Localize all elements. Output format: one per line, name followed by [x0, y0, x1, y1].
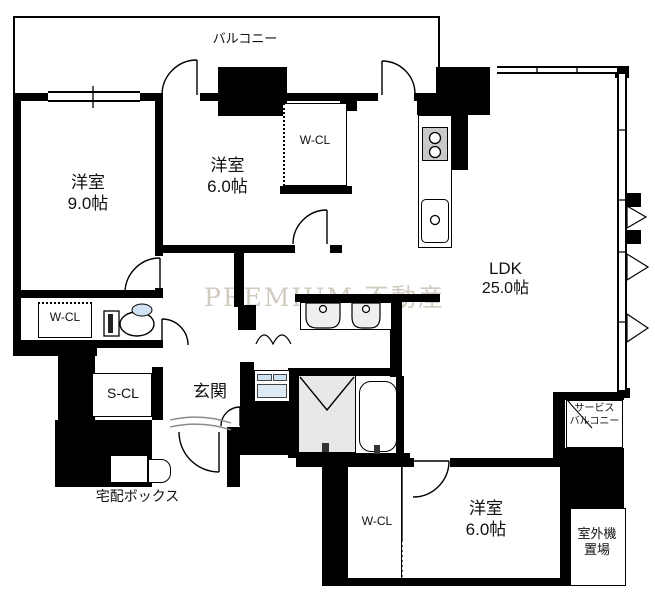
scl-label: S-CL — [94, 385, 152, 403]
casement-triangle — [627, 314, 648, 342]
service-balcony-line1: サービス — [566, 403, 623, 416]
window-bedroom9 — [48, 91, 140, 102]
wall-mark — [627, 193, 641, 207]
wall — [238, 305, 256, 330]
wall — [13, 290, 163, 298]
casement-triangle — [627, 254, 648, 280]
washing-machine-panel — [257, 374, 272, 381]
wall-pillar — [218, 67, 287, 116]
wall — [296, 453, 410, 467]
stove — [422, 127, 448, 161]
wall — [295, 294, 440, 302]
wall — [234, 250, 244, 307]
outdoor-unit-line2: 置場 — [570, 542, 624, 558]
kitchen-sink — [421, 199, 449, 243]
wall — [155, 101, 163, 256]
door-arc-toilet — [162, 319, 188, 345]
bedroom9-label: 洋室 9.0帖 — [38, 172, 138, 215]
wall — [280, 186, 352, 194]
delivery-box-label: 宅配ボックス — [80, 488, 195, 506]
door-arc-bedroom6-upper — [293, 210, 327, 244]
service-balcony-label: サービス バルコニー — [566, 403, 623, 428]
outdoor-unit-label: 室外機 置場 — [570, 526, 624, 559]
window-ldk-right — [617, 74, 627, 390]
bedroom6-lower-size: 6.0帖 — [440, 519, 532, 540]
wcl-upper-label: W-CL — [284, 133, 346, 148]
washing-machine-lid — [257, 384, 287, 398]
folding-door — [256, 335, 291, 344]
wall — [163, 245, 295, 253]
wcl-lower-label: W-CL — [350, 514, 404, 529]
door-arc-hall — [221, 407, 240, 426]
wall-pillar — [58, 350, 95, 425]
ldk-name: LDK — [458, 258, 553, 279]
wall — [13, 93, 21, 348]
toilet-icon — [104, 304, 154, 336]
wall — [560, 392, 624, 400]
bedroom6-upper-size: 6.0帖 — [180, 176, 275, 197]
floor-plan: PREMIUM 不動産 — [0, 0, 655, 595]
bedroom6-upper-label: 洋室 6.0帖 — [180, 155, 275, 198]
wall — [396, 376, 404, 456]
service-balcony-line2: バルコニー — [566, 416, 623, 429]
balcony-label: バルコニー — [200, 31, 290, 47]
wcl-left-label: W-CL — [38, 310, 92, 325]
outdoor-unit-line1: 室外機 — [570, 526, 624, 542]
wall-mark — [627, 230, 641, 244]
bedroom9-size: 9.0帖 — [38, 193, 138, 214]
wall — [398, 458, 414, 467]
wall — [452, 112, 468, 170]
wall — [330, 245, 342, 253]
ldk-label: LDK 25.0帖 — [458, 258, 553, 299]
wall — [152, 367, 163, 420]
casement-triangle — [627, 206, 646, 228]
door-opening — [378, 93, 414, 101]
ldk-size: 25.0帖 — [458, 279, 553, 299]
wall — [155, 288, 163, 298]
wall — [553, 392, 565, 467]
wall — [227, 427, 240, 487]
wall — [322, 450, 348, 586]
bedroom6-lower-label: 洋室 6.0帖 — [440, 498, 532, 541]
door-arc-bedroom6-lower — [413, 461, 449, 497]
bathtub — [359, 381, 397, 452]
wall — [340, 578, 568, 586]
washing-machine-panel — [273, 374, 287, 381]
washstand-counter — [300, 302, 392, 330]
bedroom9-name: 洋室 — [38, 172, 138, 193]
shower-room — [298, 375, 356, 453]
wall — [417, 97, 436, 115]
wall-pillar — [436, 67, 490, 115]
entrance-label: 玄関 — [182, 381, 238, 402]
door-opening — [163, 93, 200, 101]
delivery-box-fixture — [110, 455, 148, 483]
wall — [450, 458, 563, 467]
window-ldk-top — [497, 66, 617, 74]
bedroom6-upper-name: 洋室 — [180, 155, 275, 176]
delivery-box-door — [148, 459, 171, 483]
wall-pillar — [560, 448, 624, 508]
bedroom6-lower-name: 洋室 — [440, 498, 532, 519]
